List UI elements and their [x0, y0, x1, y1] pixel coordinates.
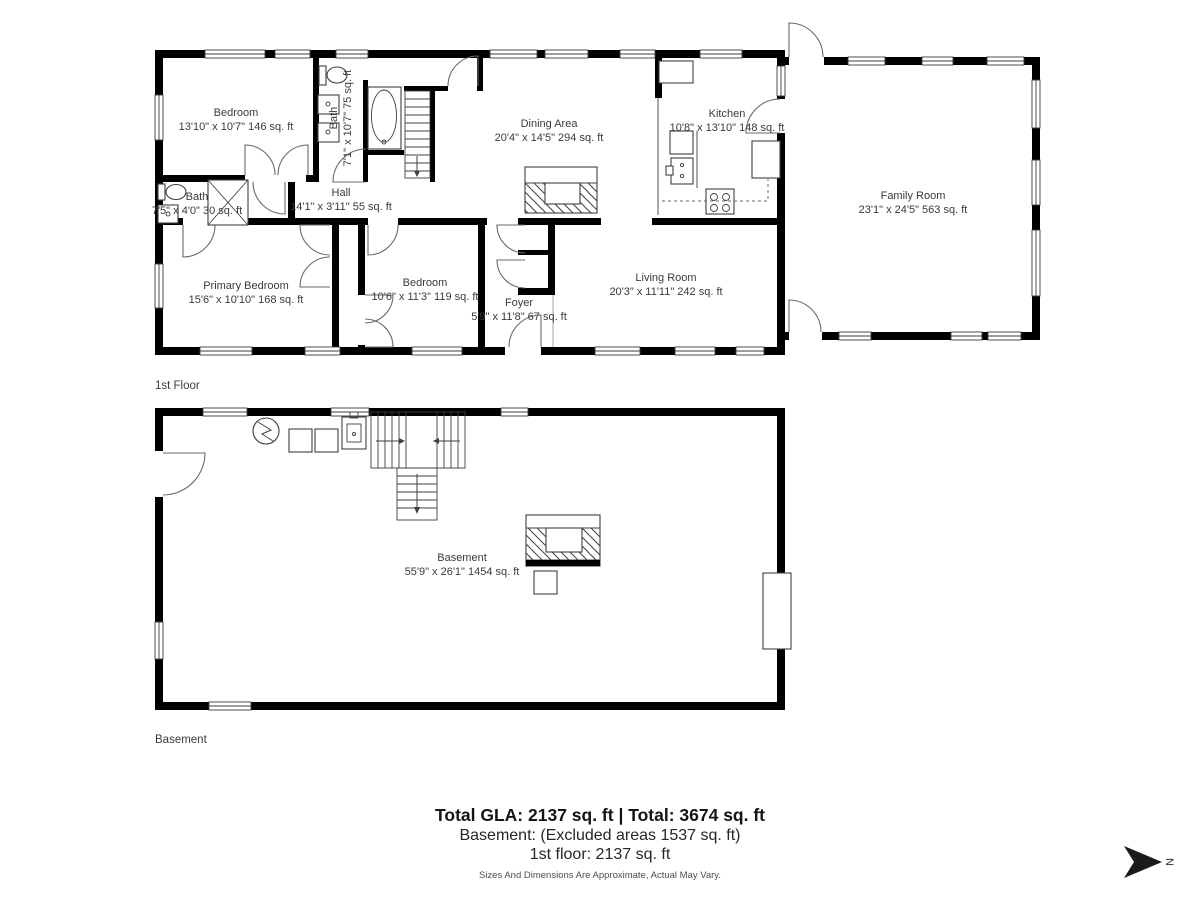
- fireplace-icon: [525, 167, 597, 213]
- toilet-icon: [158, 184, 186, 200]
- room-dims: 55'9" x 26'1" 1454 sq. ft: [405, 566, 520, 578]
- summary-disclaimer: Sizes And Dimensions Are Approximate, Ac…: [479, 870, 721, 881]
- room-dims: 13'10" x 10'7" 146 sq. ft: [179, 121, 294, 133]
- room-name: Bedroom: [403, 277, 448, 289]
- room-name: Living Room: [635, 272, 696, 284]
- counter-icon: [752, 141, 780, 178]
- room-label-primary: Primary Bedroom 15'6" x 10'10" 168 sq. f…: [189, 280, 304, 306]
- room-name: Bath: [186, 191, 209, 203]
- bathtub-icon: [368, 87, 401, 149]
- utility-sink-icon: [342, 412, 366, 449]
- basement-staircase-icon: [371, 412, 465, 520]
- dryer-icon: [315, 429, 338, 452]
- room-dims: 20'3" x 11'11" 242 sq. ft: [609, 286, 722, 298]
- support-post-icon: [534, 571, 557, 594]
- room-dims: 10'6" x 11'3" 119 sq. ft: [371, 291, 478, 303]
- room-dims: 23'1" x 24'5" 563 sq. ft: [859, 204, 968, 216]
- staircase-icon: [405, 91, 430, 178]
- room-name: Foyer: [505, 297, 533, 309]
- room-label-bath-upper: Bath 7'1" x 10'7" 75 sq. ft: [328, 70, 354, 166]
- room-dims: 10'8" x 13'10" 148 sq. ft: [670, 122, 785, 134]
- room-dims: 20'4" x 14'5" 294 sq. ft: [495, 132, 604, 144]
- room-dims: 5'9" x 11'8" 67 sq. ft: [471, 311, 567, 323]
- room-dims: 14'1" x 3'11" 55 sq. ft: [290, 201, 392, 213]
- room-label-dining: Dining Area 20'4" x 14'5" 294 sq. ft: [495, 118, 604, 144]
- north-arrow-icon: [1124, 846, 1162, 878]
- water-heater-icon: [253, 418, 279, 444]
- floor-plan-svg: Bedroom 13'10" x 10'7" 146 sq. ft Bath 7…: [0, 0, 1200, 900]
- kitchen-fixtures: [658, 61, 780, 215]
- compass-north-label: N: [1163, 858, 1175, 866]
- room-label-hall: Hall 14'1" x 3'11" 55 sq. ft: [290, 187, 392, 213]
- summary-first-floor: 1st floor: 2137 sq. ft: [530, 846, 671, 863]
- room-label-kitchen: Kitchen 10'8" x 13'10" 148 sq. ft: [670, 108, 785, 134]
- chimney-icon: [526, 515, 600, 566]
- room-label-family: Family Room 23'1" x 24'5" 563 sq. ft: [859, 190, 968, 216]
- basement-fixtures: [253, 412, 791, 649]
- stove-icon: [706, 189, 734, 214]
- first-floor-label: 1st Floor: [155, 380, 200, 392]
- bulkhead-icon: [763, 573, 791, 649]
- room-label-bedroom2: Bedroom 10'6" x 11'3" 119 sq. ft: [371, 277, 478, 303]
- washer-icon: [289, 429, 312, 452]
- room-dims: 7'5" x 4'0" 30 sq. ft: [152, 205, 242, 217]
- shower-icon: [208, 180, 248, 225]
- room-name: Kitchen: [709, 108, 746, 120]
- windows: [155, 50, 1040, 710]
- floor-plan-page: Bedroom 13'10" x 10'7" 146 sq. ft Bath 7…: [0, 0, 1200, 900]
- summary-totals: Total GLA: 2137 sq. ft | Total: 3674 sq.…: [435, 805, 765, 825]
- basement-floor-label: Basement: [155, 734, 208, 746]
- room-dims: 7'1" x 10'7" 75 sq. ft: [342, 70, 354, 166]
- room-label-basement: Basement 55'9" x 26'1" 1454 sq. ft: [405, 552, 520, 578]
- fridge-icon: [659, 61, 693, 83]
- room-dims: 15'6" x 10'10" 168 sq. ft: [189, 294, 304, 306]
- compass: N: [1124, 846, 1175, 878]
- room-label-foyer: Foyer 5'9" x 11'8" 67 sq. ft: [471, 297, 567, 323]
- room-name: Basement: [437, 552, 487, 564]
- counter-appliance-icon: [670, 131, 693, 154]
- room-name: Bath: [328, 107, 340, 130]
- room-name: Family Room: [881, 190, 946, 202]
- room-label-bedroom1: Bedroom 13'10" x 10'7" 146 sq. ft: [179, 107, 294, 133]
- room-name: Hall: [332, 187, 351, 199]
- kitchen-sink-icon: [666, 158, 693, 184]
- summary-block: Total GLA: 2137 sq. ft | Total: 3674 sq.…: [435, 805, 765, 881]
- room-label-living: Living Room 20'3" x 11'11" 242 sq. ft: [609, 272, 722, 298]
- summary-basement: Basement: (Excluded areas 1537 sq. ft): [459, 827, 740, 844]
- room-name: Primary Bedroom: [203, 280, 289, 292]
- room-name: Dining Area: [521, 118, 579, 130]
- room-name: Bedroom: [214, 107, 259, 119]
